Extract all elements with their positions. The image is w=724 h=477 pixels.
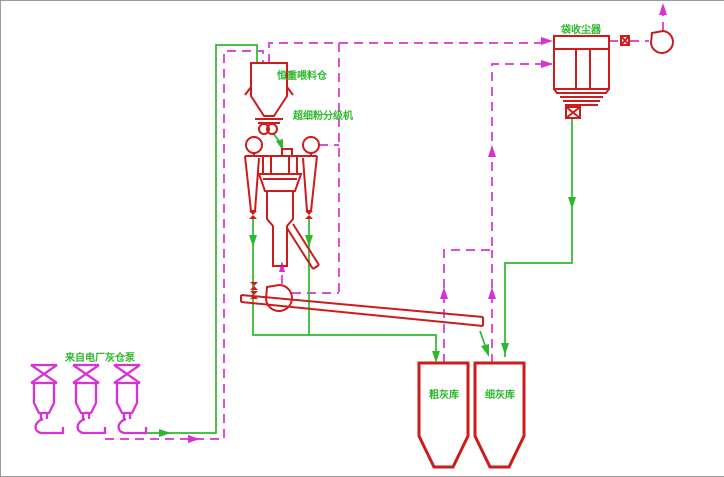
bag-filter-label: 袋收尘器 bbox=[560, 23, 602, 36]
arrow-down-icon bbox=[501, 343, 509, 355]
flowsheet-svg: 恒重喂料仓 超细粉分级机 袋收尘器 来自电厂灰仓泵 粗灰库 细灰库 bbox=[1, 1, 724, 477]
coarse-silo-label: 粗灰库 bbox=[429, 388, 459, 401]
fine-ash-silo-icon bbox=[475, 363, 524, 467]
arrow-down-icon bbox=[568, 197, 576, 209]
arrow-up-icon bbox=[488, 145, 496, 157]
fine-silo-label: 细灰库 bbox=[485, 388, 515, 401]
flowsheet-diagram: 恒重喂料仓 超细粉分级机 袋收尘器 来自电厂灰仓泵 粗灰库 细灰库 bbox=[0, 0, 724, 477]
bin-pump-icon bbox=[114, 365, 146, 433]
material-line-conveyor-to-fine-silo bbox=[480, 331, 489, 357]
exhaust-to-atmosphere-line bbox=[659, 3, 667, 31]
arrow-up-icon bbox=[440, 287, 448, 299]
rotary-feeder-icon bbox=[259, 124, 277, 134]
arrow-up-icon bbox=[659, 3, 667, 15]
filter-to-fan-line bbox=[609, 36, 649, 45]
coarse-ash-silo-icon bbox=[419, 363, 468, 467]
arrow-right-icon bbox=[159, 429, 171, 437]
arrow-down-icon bbox=[432, 351, 440, 363]
material-line-filter-to-fine-silo bbox=[501, 118, 576, 357]
bag-filter-icon bbox=[554, 36, 609, 89]
bag-filter bbox=[554, 36, 609, 118]
bin-pump-icon bbox=[73, 365, 105, 433]
material-line-cyclones-to-coarse-silo bbox=[249, 219, 440, 363]
arrow-up-icon bbox=[488, 287, 496, 299]
bin-pump-icon bbox=[31, 365, 63, 433]
cyclone-icon bbox=[245, 156, 259, 211]
arrow-down-icon bbox=[249, 235, 257, 247]
discharge-chute-icon bbox=[287, 224, 319, 269]
material-line-pumps-to-bin bbox=[146, 45, 257, 437]
cyclone-top-icon bbox=[246, 137, 262, 153]
feed-bin-label: 恒重喂料仓 bbox=[277, 69, 328, 82]
pneumatic-conveying-line-from-pumps bbox=[105, 51, 263, 443]
arrow-right-icon bbox=[541, 37, 553, 45]
arrow-right-icon bbox=[541, 60, 553, 68]
classifier-label: 超细粉分级机 bbox=[292, 109, 353, 122]
classifier-mill bbox=[245, 137, 319, 299]
exhaust-fan-icon bbox=[651, 31, 673, 53]
vent-line-bin-to-bagfilter bbox=[269, 37, 553, 63]
valve-icon bbox=[305, 211, 313, 219]
valve-icon bbox=[250, 282, 258, 290]
cyclone-icon bbox=[303, 156, 317, 211]
silo-vent-lines bbox=[440, 60, 553, 363]
valve-icon bbox=[249, 211, 257, 219]
bin-pumps bbox=[31, 365, 146, 433]
mill-inlet-icon bbox=[282, 149, 292, 156]
cyclone-top-icon bbox=[303, 137, 319, 153]
source-pumps-label: 来自电厂灰仓泵 bbox=[64, 351, 136, 364]
arrow-down-icon bbox=[481, 344, 489, 357]
arrow-right-icon bbox=[188, 435, 200, 443]
